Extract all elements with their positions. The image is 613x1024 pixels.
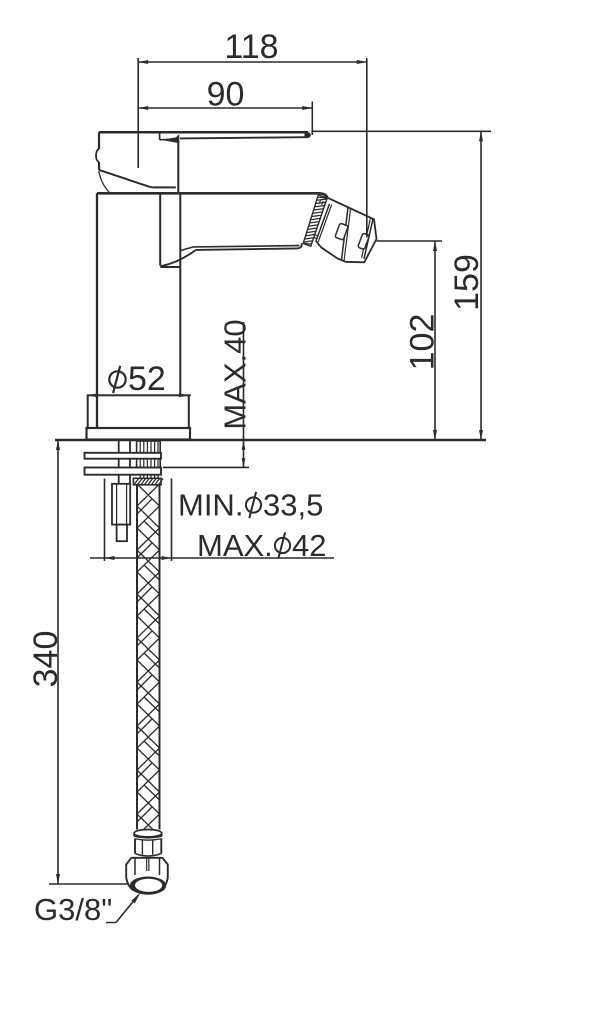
svg-text:G3/8": G3/8" [34,892,112,927]
svg-text:MAX.40: MAX.40 [218,319,253,429]
svg-text:MAX.: MAX. [197,528,273,563]
svg-text:90: 90 [207,76,245,114]
svg-text:42: 42 [292,528,326,563]
svg-text:33,5: 33,5 [263,488,323,523]
svg-text:102: 102 [404,314,442,371]
svg-text:159: 159 [448,254,486,311]
svg-text:118: 118 [224,28,278,66]
svg-text:MIN.: MIN. [178,488,243,523]
svg-text:52: 52 [128,360,166,398]
svg-text:340: 340 [27,631,65,688]
